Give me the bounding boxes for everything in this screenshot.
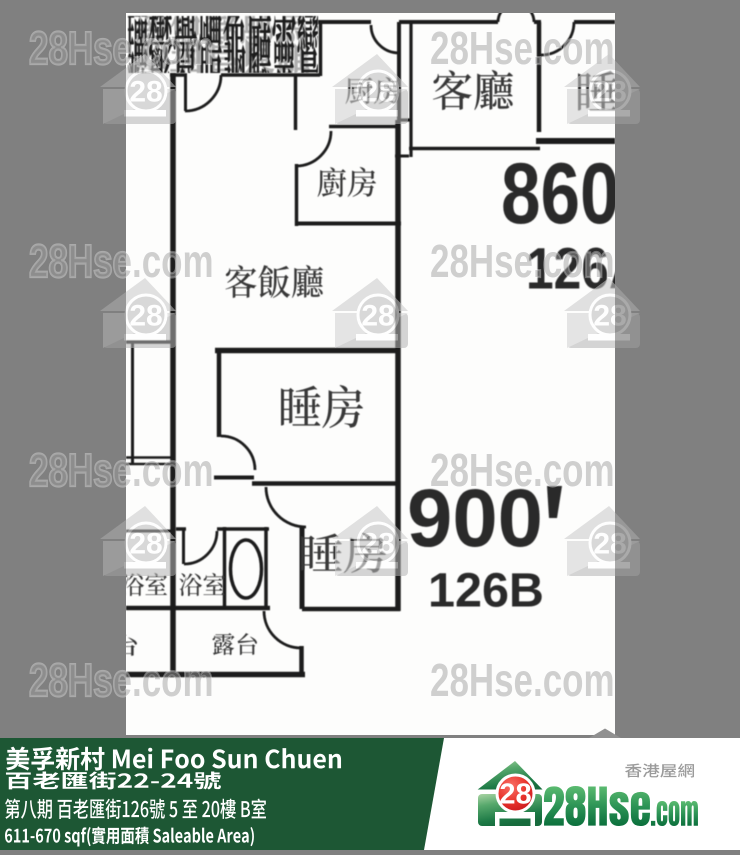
svg-text:28Hse.com: 28Hse.com xyxy=(29,235,214,287)
svg-text:126B: 126B xyxy=(428,564,544,618)
svg-text:28Hse.com: 28Hse.com xyxy=(430,22,615,74)
svg-text:28Hse.com: 28Hse.com xyxy=(430,654,615,706)
svg-text:860: 860 xyxy=(501,144,620,241)
svg-text:28Hse.com: 28Hse.com xyxy=(29,444,214,496)
svg-text:28: 28 xyxy=(499,779,531,811)
svg-text:28Hse.com: 28Hse.com xyxy=(430,235,615,287)
svg-text:28Hse.com: 28Hse.com xyxy=(29,22,214,74)
svg-text:28Hse.com: 28Hse.com xyxy=(430,444,615,496)
svg-text:28Hse.com: 28Hse.com xyxy=(29,654,214,706)
